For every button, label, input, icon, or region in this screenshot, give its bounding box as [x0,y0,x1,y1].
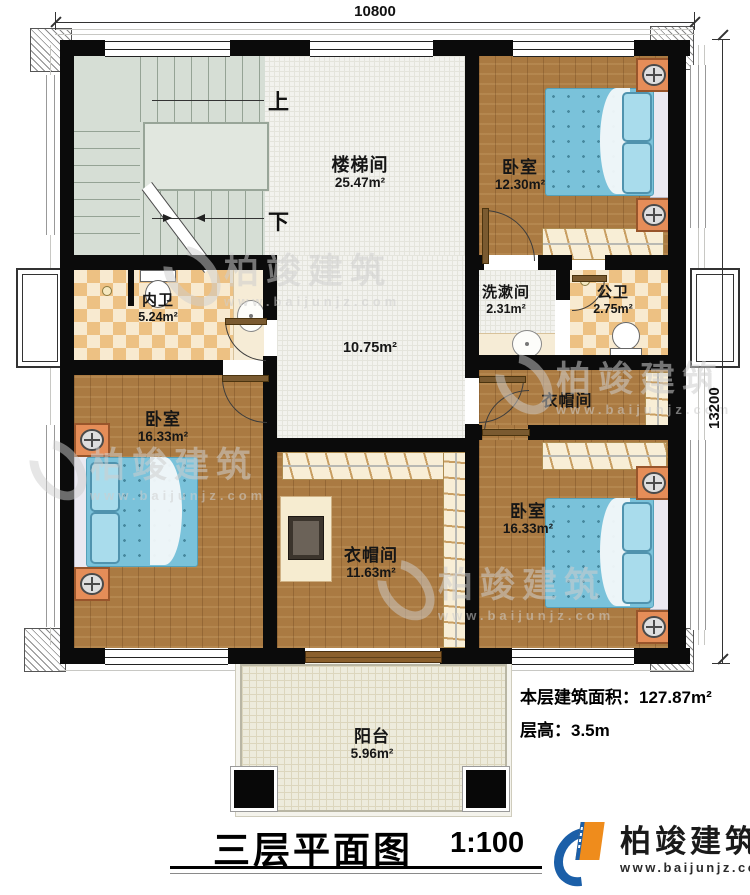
door-leaf [479,376,526,383]
bed-pillow [90,462,120,512]
wall-segment [465,370,479,378]
window [310,41,433,57]
room-label-balcony: 阳台 5.96m² [332,727,412,761]
room-area: 5.24m² [118,310,198,324]
room-area: 16.33m² [488,521,568,536]
title-underline-thin [170,873,542,874]
door-leaf [482,208,489,264]
stair-landing [143,122,269,191]
room-name: 卧室 [123,410,203,429]
bed-pillow [622,552,652,604]
dimension-extension [712,39,730,40]
room-label-bedroom-bottom-right: 卧室 16.33m² [488,502,568,536]
wall-segment [465,425,482,440]
wall-segment [263,255,277,320]
nightstand [636,610,672,644]
plan-scale: 1:100 [450,827,524,860]
door-leaf [222,375,269,382]
room-label-cloakroom-center: 衣帽间 11.63m² [328,546,414,580]
wall-segment [440,648,512,664]
nightstand [74,567,110,601]
dimension-width-label: 10800 [330,3,420,20]
room-area: 2.75m² [578,302,648,316]
wall-segment [528,425,668,440]
brand-website: www.baijunjz.com [620,861,750,874]
stair-arrow-right [163,214,172,222]
wall-segment [60,648,105,664]
stair-flight-top [140,56,265,122]
wall-segment [230,40,310,56]
room-label-private-bathroom: 内卫 5.24m² [118,293,198,324]
hall-area-label: 10.75m² [325,340,415,356]
wall-segment [634,648,690,664]
wardrobe [282,452,444,480]
window [105,41,230,57]
window [690,65,706,228]
pillar [466,770,506,808]
eave-line [60,670,235,671]
wall-segment [668,40,686,664]
stair-flight-left [74,122,140,234]
wall-segment [277,438,465,452]
floor-area-value: 127.87m² [639,688,712,707]
wall-segment [60,255,277,270]
floor-height-label: 层高： [520,721,571,740]
room-area: 25.47m² [295,175,425,190]
room-label-bedroom-top-right: 卧室 12.30m² [480,158,560,192]
eave-line [505,670,690,671]
lamp-icon [80,573,104,595]
bed-pillow [622,502,652,552]
room-area: 16.33m² [123,429,203,444]
lamp-icon [642,472,666,494]
window [105,649,228,665]
room-name: 内卫 [118,293,198,310]
window [513,41,634,57]
room-name: 卧室 [480,158,560,177]
dimension-line-top [55,22,695,23]
wall-segment [266,360,277,375]
lamp-icon [80,429,104,451]
floor-height-info: 层高：3.5m [520,716,610,741]
lamp-icon [642,64,666,86]
stair-up-leader [152,100,264,101]
dimension-height-label: 13200 [706,368,723,448]
room-area: 12.30m² [480,177,560,192]
room-label-stairwell: 楼梯间 25.47m² [295,155,425,190]
room-name: 楼梯间 [295,155,425,175]
door-leaf [572,275,607,282]
room-name: 阳台 [332,727,412,746]
wall-segment [465,40,479,370]
room-area: 11.63m² [328,565,414,580]
nightstand [636,58,672,92]
room-area: 2.31m² [465,302,547,316]
wall-segment [465,440,479,648]
wall-segment [465,355,668,370]
room-label-washroom: 洗漱间 2.31m² [465,285,547,316]
nightstand [74,423,110,457]
room-label-cloakroom-right: 衣帽间 [525,393,609,411]
dimension-line-right [722,40,723,664]
room-area: 10.75m² [325,340,415,356]
bed-pillow [90,512,120,564]
stair-down-label: 下 [268,206,289,236]
wall-segment [538,255,572,270]
balcony-door [305,651,442,663]
stair-arrow-left [196,214,205,222]
window [690,440,706,630]
floor-plan: 10800 13200 上 下 [0,0,750,895]
wardrobe-shelves [443,452,467,648]
door-leaf [225,318,267,325]
sink-icon [512,330,542,358]
room-name: 卧室 [488,502,568,521]
eave-line [55,29,695,30]
room-name: 洗漱间 [465,285,547,302]
room-area: 5.96m² [332,746,412,761]
floor-height-value: 3.5m [571,721,610,740]
room-label-bedroom-left: 卧室 16.33m² [123,410,203,444]
bay-window [16,268,64,368]
brand-logo: 柏竣建筑 www.baijunjz.com [556,820,750,880]
nightstand [636,198,672,232]
stair-up-label: 上 [268,86,289,116]
lamp-icon [642,616,666,638]
eave-line [55,34,695,35]
room-label-public-bathroom: 公卫 2.75m² [578,285,648,316]
lamp-icon [642,204,666,226]
floor-area-label: 本层建筑面积： [520,688,639,707]
light-fixture-icon [102,286,112,296]
toilet-icon [612,322,640,350]
room-name: 衣帽间 [328,546,414,565]
dimension-extension [712,663,730,664]
dresser [288,516,324,560]
floor-area-info: 本层建筑面积：127.87m² [520,683,712,708]
wall-segment [60,40,74,664]
room-name: 公卫 [578,285,648,302]
brand-name: 柏竣建筑 [620,826,750,857]
bay-window [690,268,740,368]
room-name: 衣帽间 [525,393,609,411]
window [512,649,634,665]
pillar [234,770,274,808]
brand-logo-icon [556,820,612,880]
door-leaf [482,429,530,436]
bed-pillow [622,92,652,142]
bed-pillow [622,142,652,194]
wall-segment [228,648,305,664]
title-underline [170,866,542,869]
wall-segment [556,270,570,300]
nightstand [636,466,672,500]
wall-segment [605,255,668,270]
wall-segment [60,360,223,375]
